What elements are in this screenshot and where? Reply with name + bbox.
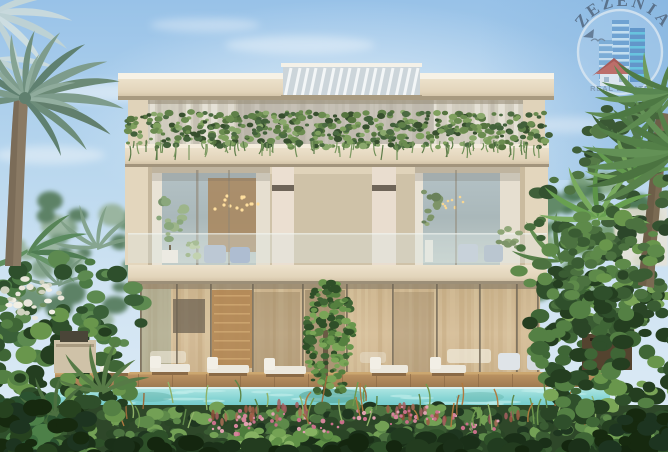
svg-text:E: E xyxy=(617,0,628,10)
